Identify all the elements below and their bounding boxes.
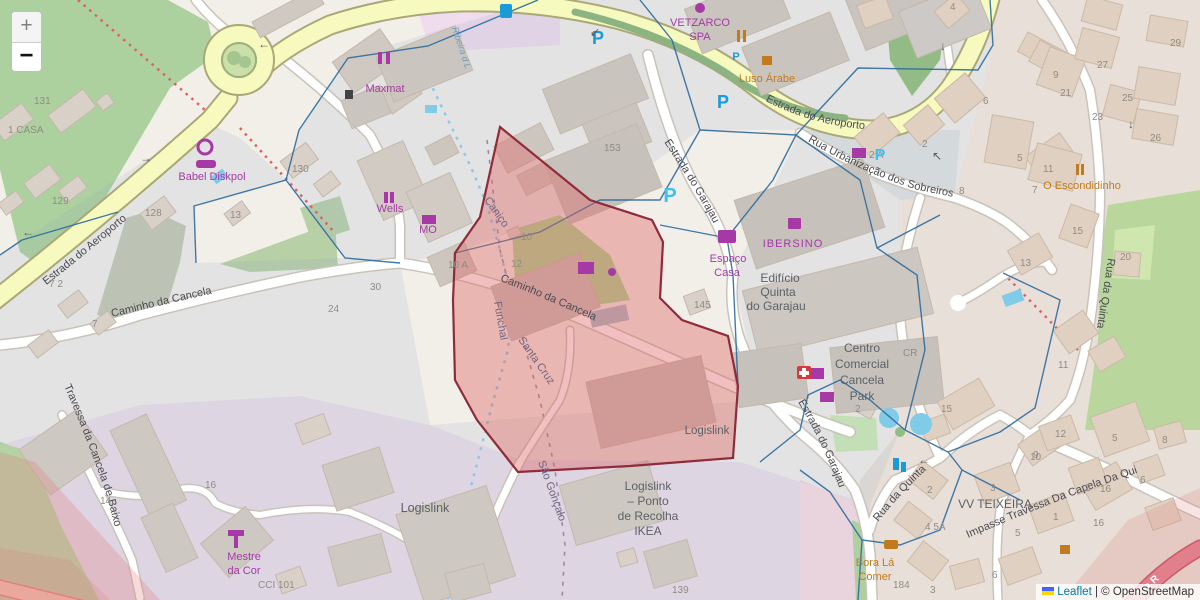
svg-text:←: ← [918,453,930,467]
svg-text:Quinta: Quinta [760,285,796,299]
svg-text:←: ← [22,225,34,239]
svg-text:↙: ↙ [590,25,600,39]
svg-text:10 A: 10 A [448,260,468,271]
svg-text:13: 13 [1020,258,1032,269]
svg-text:P: P [732,51,739,63]
svg-text:CR: CR [903,348,917,359]
svg-text:2: 2 [855,404,861,415]
svg-text:VETZARCO: VETZARCO [670,17,730,29]
svg-text:VV TEIXEIRA: VV TEIXEIRA [958,497,1032,511]
svg-text:153: 153 [604,143,621,154]
svg-text:131: 131 [34,96,51,107]
svg-text:29: 29 [1170,38,1182,49]
svg-text:Bora Lá: Bora Lá [856,557,895,569]
svg-text:16: 16 [205,480,217,491]
svg-text:6: 6 [983,96,989,107]
svg-text:1: 1 [1053,512,1059,523]
svg-text:5: 5 [1017,153,1023,164]
svg-text:20: 20 [1120,252,1132,263]
svg-text:5: 5 [1112,433,1118,444]
svg-text:Luso Árabe: Luso Árabe [739,72,795,85]
svg-text:13: 13 [230,210,242,221]
svg-text:Park: Park [850,389,876,403]
svg-text:11: 11 [1043,164,1054,175]
svg-text:Centro: Centro [844,341,880,355]
svg-text:24: 24 [328,304,340,315]
svg-text:6: 6 [1140,475,1146,486]
svg-text:SPA: SPA [689,31,711,43]
svg-text:139: 139 [672,585,689,596]
svg-text:30: 30 [370,282,382,293]
svg-text:11: 11 [1058,360,1069,371]
svg-text:1 CASA: 1 CASA [8,125,44,136]
svg-text:– Ponto: – Ponto [627,494,669,508]
svg-text:145: 145 [694,300,711,311]
svg-text:184: 184 [893,580,910,591]
svg-text:IKEA: IKEA [634,524,661,538]
svg-text:10: 10 [521,232,533,243]
svg-text:Edifício: Edifício [760,271,800,285]
svg-text:Logislink: Logislink [625,479,673,493]
svg-text:Cancela: Cancela [840,373,884,387]
svg-text:21: 21 [1060,88,1072,99]
svg-text:do Garajau: do Garajau [746,299,805,313]
svg-text:8: 8 [959,186,965,197]
svg-text:CCI 101: CCI 101 [258,580,295,591]
svg-text:27: 27 [1097,60,1109,71]
svg-text:12: 12 [1055,429,1067,440]
svg-text:P: P [663,185,676,207]
svg-text:15: 15 [941,404,953,415]
svg-text:de Recolha: de Recolha [618,509,679,523]
svg-text:Comer: Comer [858,571,891,583]
svg-text:129: 129 [52,196,69,207]
svg-text:←: ← [258,37,270,51]
svg-text:8: 8 [1162,435,1168,446]
svg-text:Logislink: Logislink [401,501,450,515]
svg-text:12: 12 [511,259,523,270]
svg-text:Wells: Wells [377,203,404,215]
svg-text:Comercial: Comercial [835,357,889,371]
svg-text:3: 3 [930,585,936,596]
svg-text:23: 23 [1092,112,1104,123]
svg-text:3: 3 [990,483,996,494]
svg-text:7 2: 7 2 [49,279,63,290]
svg-text:15: 15 [1072,226,1084,237]
svg-text:130: 130 [292,164,309,175]
svg-text:Espaço: Espaço [710,253,747,265]
svg-text:Mestre: Mestre [227,551,261,563]
svg-text:Logislink: Logislink [685,425,730,437]
svg-text:→: → [140,151,152,165]
svg-text:4 5A: 4 5A [925,522,946,533]
svg-text:↓: ↓ [940,39,946,53]
svg-text:6: 6 [992,570,998,581]
svg-text:↓: ↓ [1128,117,1134,131]
svg-text:3: 3 [1085,483,1091,494]
svg-text:2: 2 [927,485,933,496]
svg-text:4: 4 [950,2,956,13]
svg-text:16: 16 [1100,484,1112,495]
svg-text:2: 2 [922,139,928,150]
svg-text:P: P [717,92,729,112]
svg-text:MO: MO [419,224,437,236]
svg-text:P: P [875,147,886,164]
svg-text:IBERSINO: IBERSINO [763,238,824,250]
svg-text:7: 7 [1032,185,1038,196]
svg-text:Babel Diskpol: Babel Diskpol [178,171,245,183]
svg-text:5: 5 [1015,528,1021,539]
svg-text:Maxmat: Maxmat [365,83,404,95]
svg-text:128: 128 [145,208,162,219]
svg-text:O Escondidinho: O Escondidinho [1043,180,1121,192]
svg-text:16: 16 [1093,518,1105,529]
svg-text:7: 7 [92,319,98,330]
svg-text:9: 9 [1053,70,1059,81]
svg-text:14: 14 [100,496,112,507]
svg-text:10: 10 [1030,452,1042,463]
svg-text:da Cor: da Cor [227,565,260,577]
svg-text:Casa: Casa [714,267,741,279]
svg-text:25: 25 [1122,93,1134,104]
svg-text:26: 26 [1150,133,1162,144]
svg-text:↖: ↖ [932,149,942,163]
